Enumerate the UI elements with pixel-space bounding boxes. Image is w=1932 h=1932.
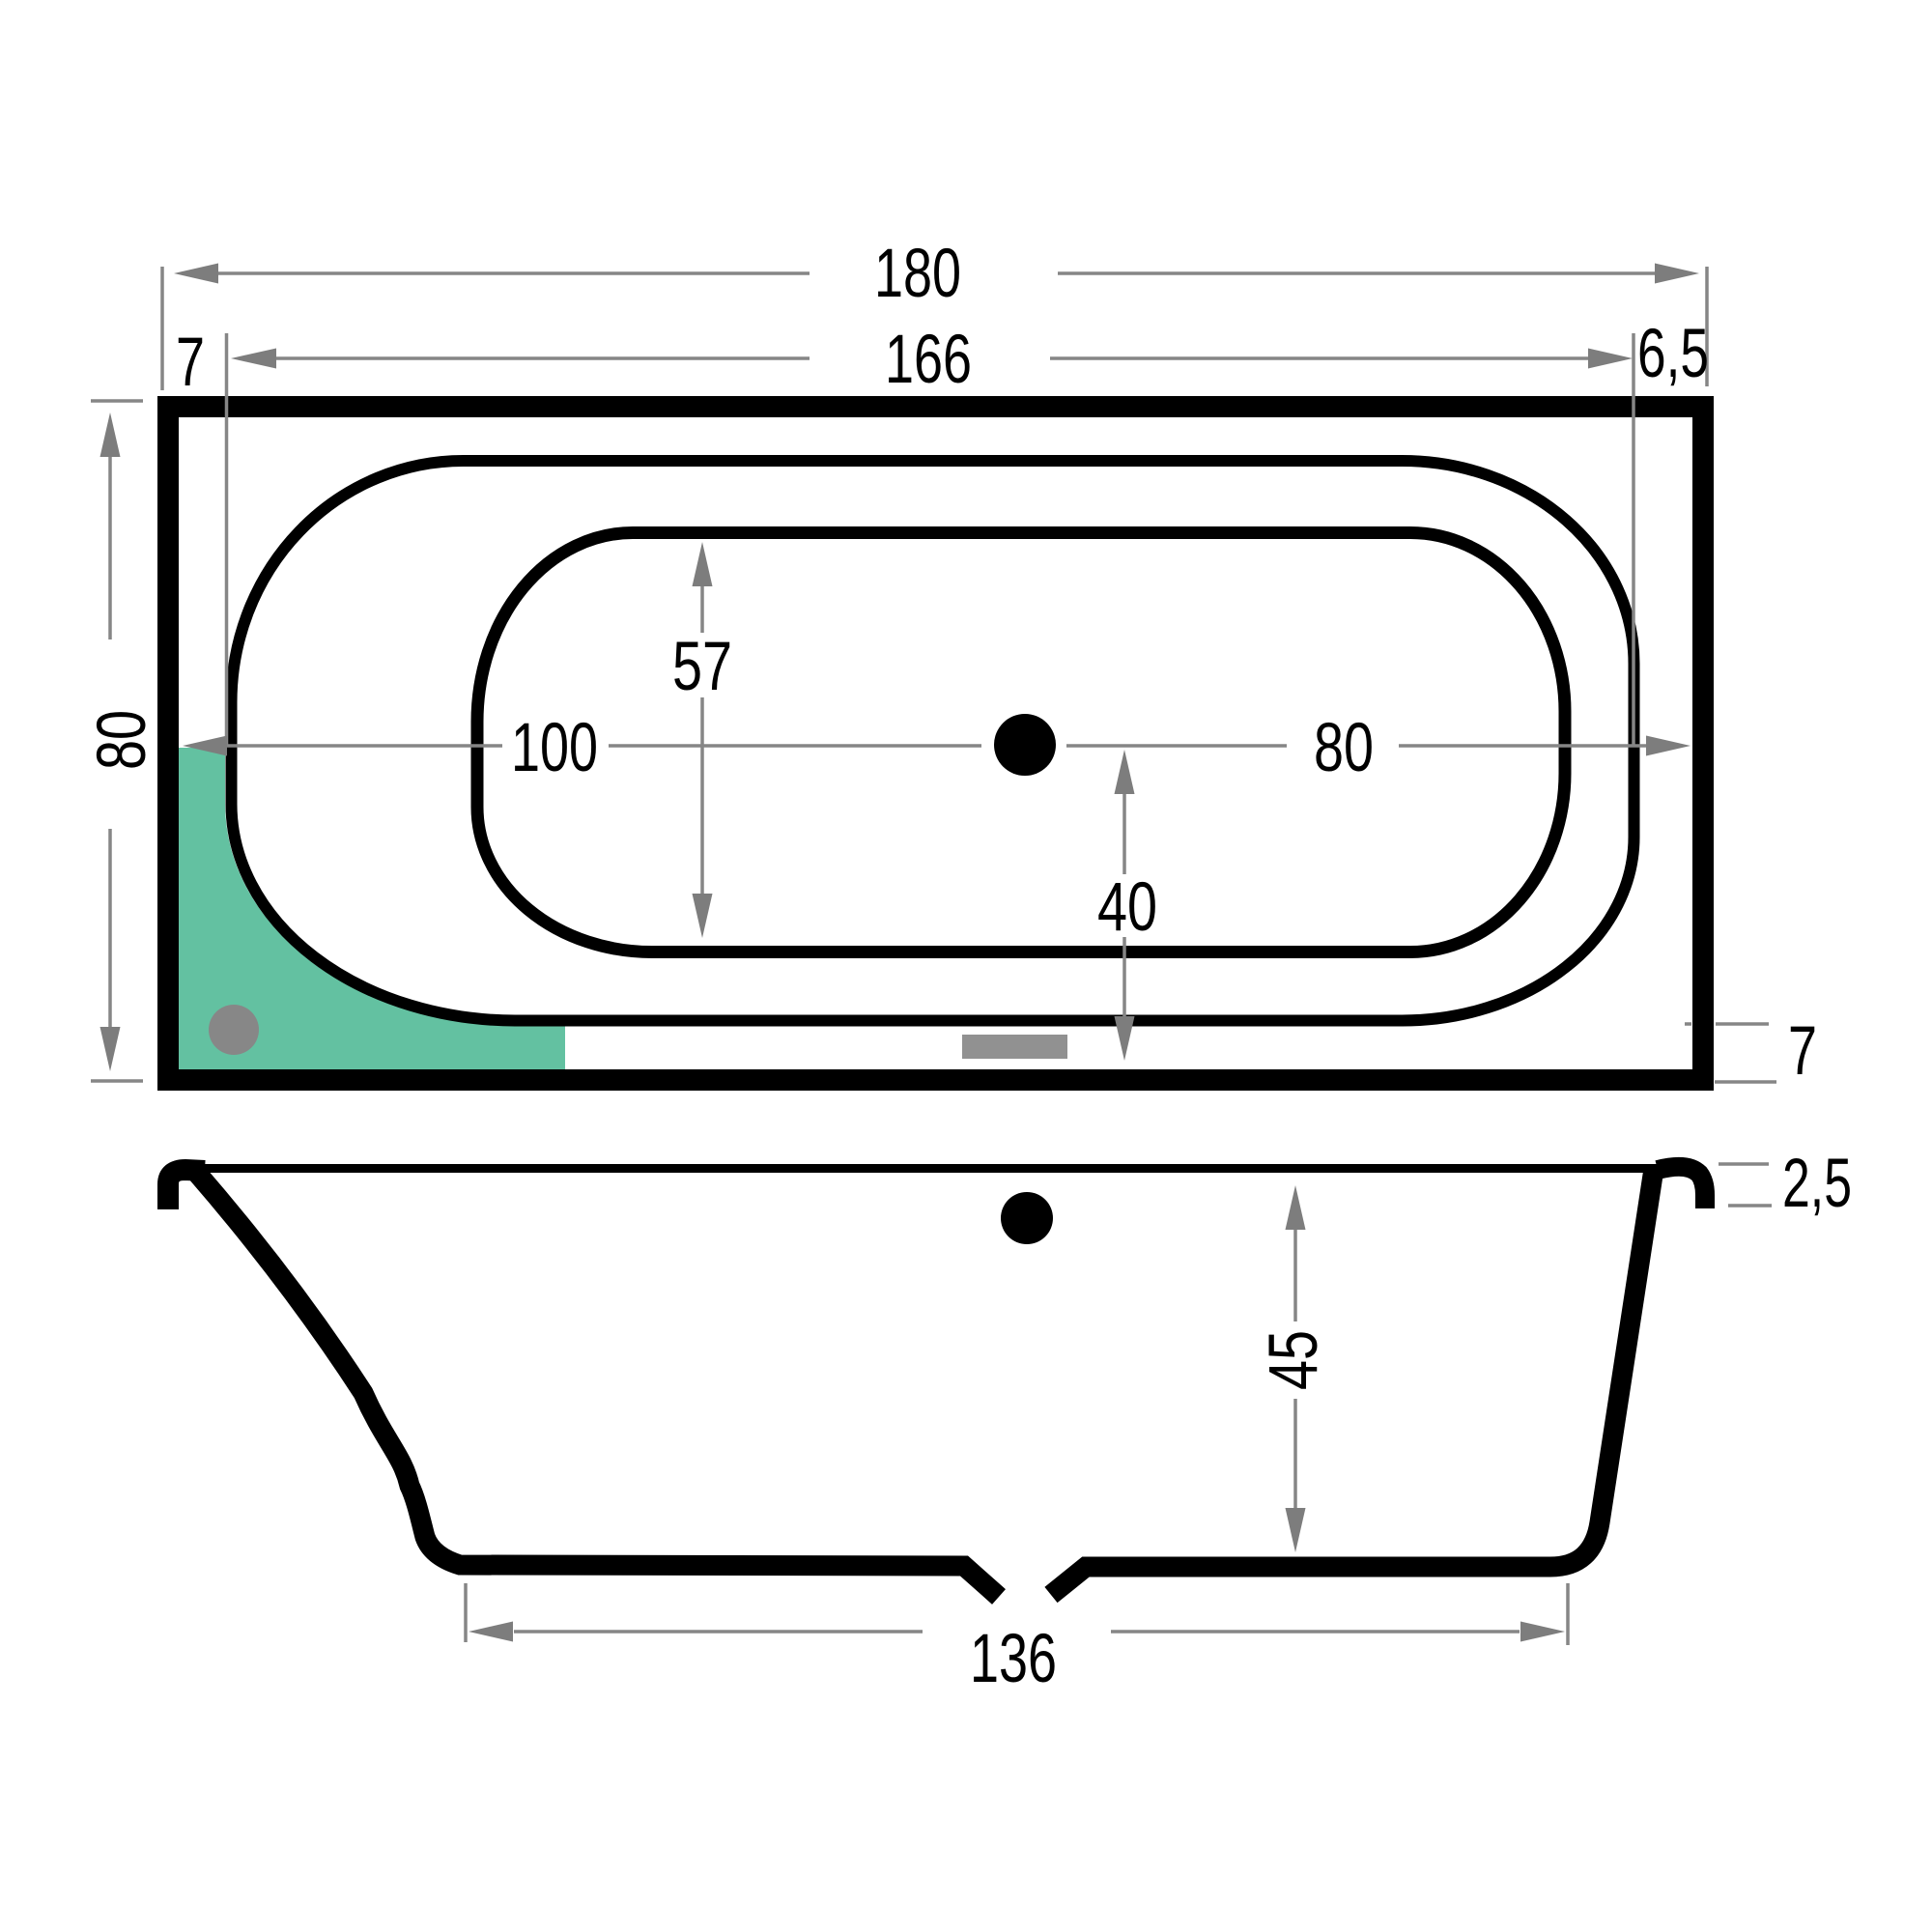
svg-text:57: 57 [672, 629, 732, 705]
svg-text:100: 100 [511, 710, 598, 786]
svg-text:45: 45 [1256, 1330, 1332, 1390]
svg-text:80: 80 [1314, 710, 1374, 786]
svg-text:6,5: 6,5 [1637, 316, 1709, 392]
svg-text:7: 7 [1788, 1013, 1817, 1090]
svg-text:40: 40 [1097, 869, 1157, 946]
svg-text:2,5: 2,5 [1782, 1146, 1852, 1222]
svg-text:180: 180 [874, 236, 961, 312]
svg-text:7: 7 [176, 325, 205, 401]
svg-text:136: 136 [970, 1621, 1057, 1697]
svg-text:80: 80 [84, 710, 160, 770]
svg-text:166: 166 [885, 322, 972, 398]
